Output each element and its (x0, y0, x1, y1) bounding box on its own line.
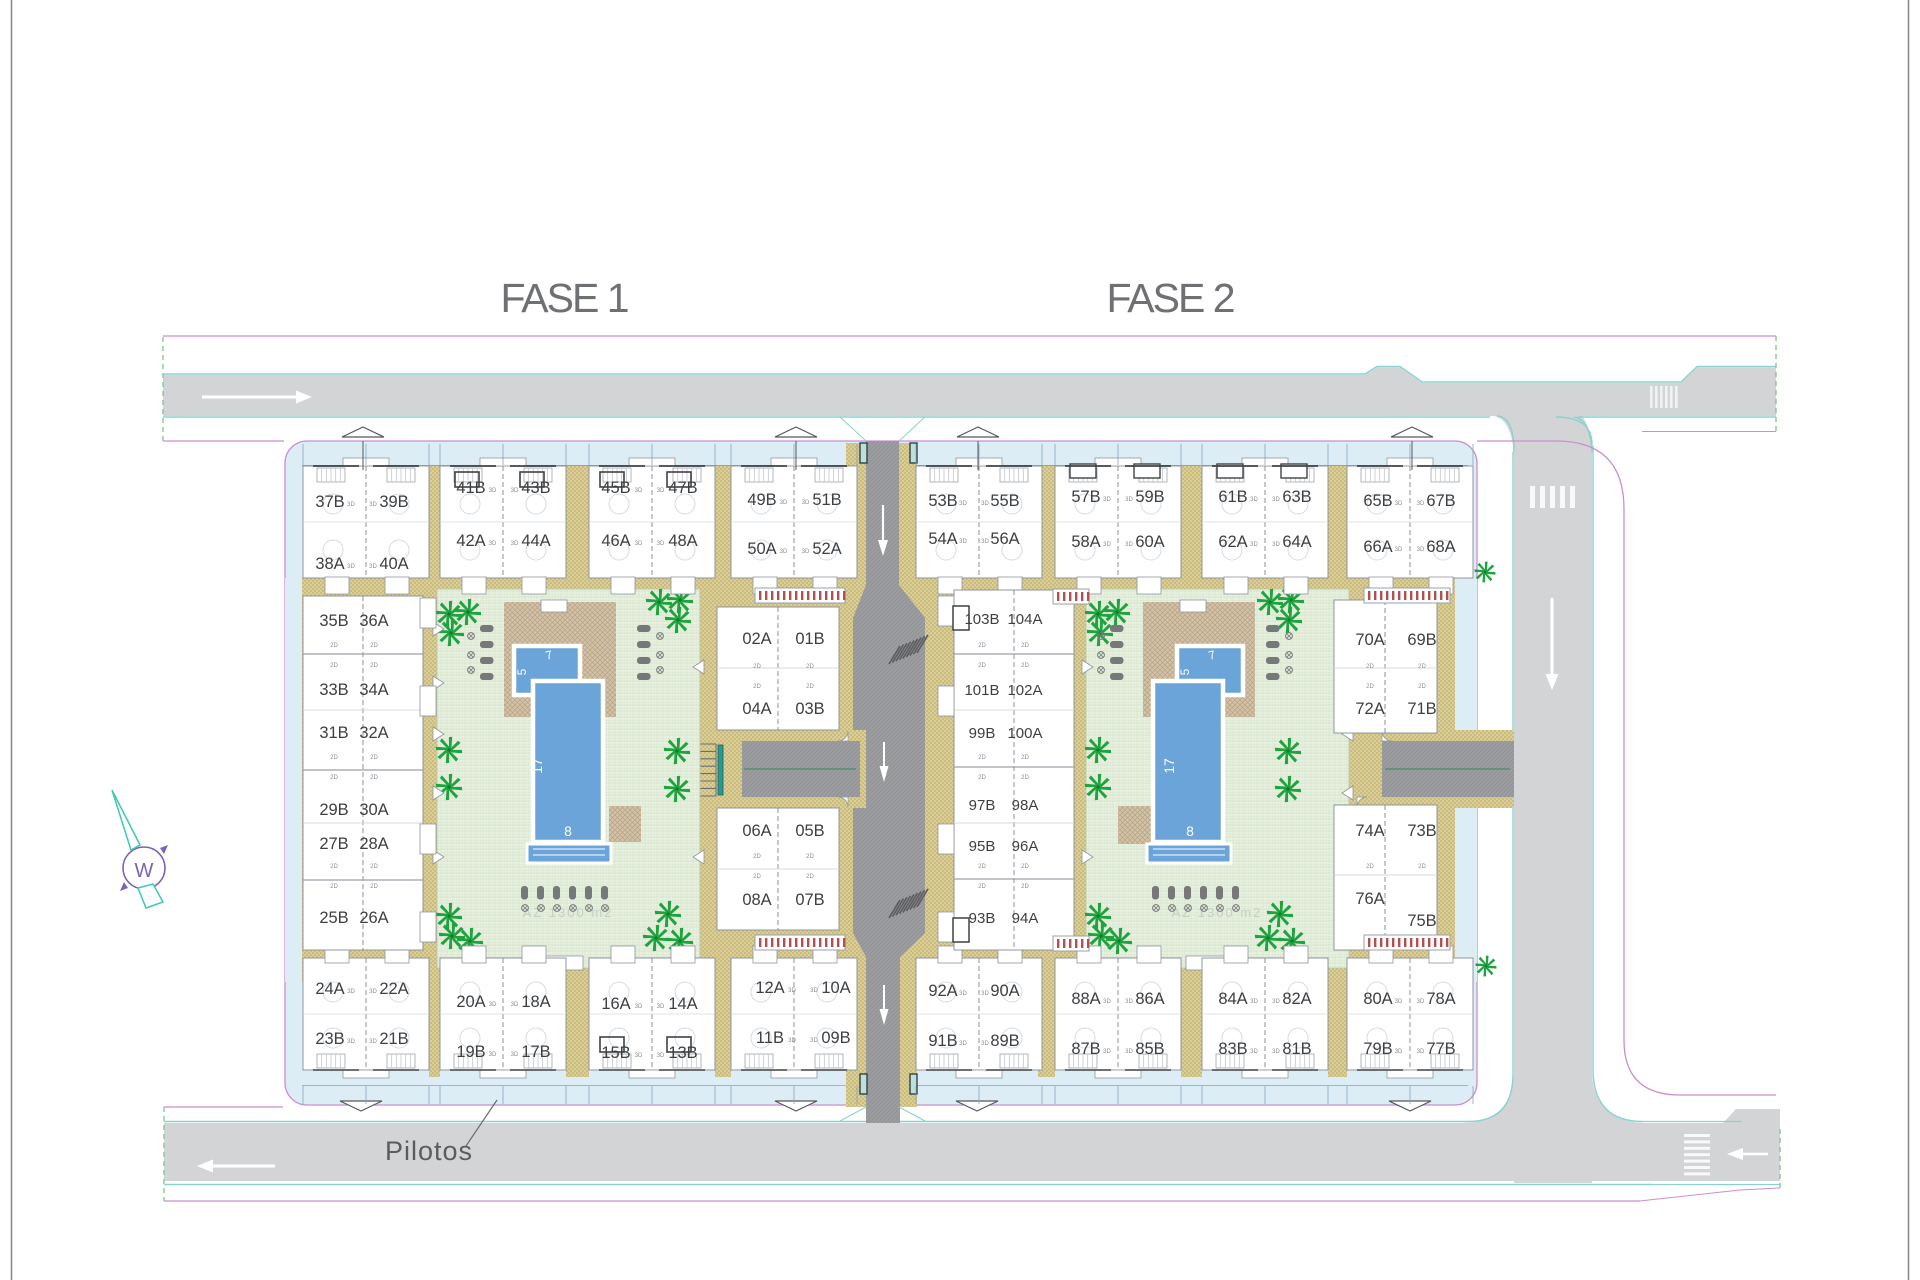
svg-text:3D: 3D (981, 991, 989, 997)
svg-text:2D: 2D (330, 643, 338, 649)
svg-text:10A: 10A (821, 979, 850, 997)
svg-text:14A: 14A (668, 995, 697, 1013)
svg-text:8: 8 (564, 823, 572, 839)
svg-text:3D: 3D (1272, 999, 1280, 1005)
svg-text:3D: 3D (1125, 1049, 1133, 1055)
svg-text:22A: 22A (379, 980, 408, 998)
svg-text:3D: 3D (489, 1002, 497, 1008)
svg-text:38A: 38A (315, 555, 344, 573)
svg-text:3D: 3D (1250, 542, 1258, 548)
svg-text:87B: 87B (1071, 1040, 1100, 1058)
svg-text:3D: 3D (1125, 497, 1133, 503)
svg-text:3D: 3D (1395, 999, 1403, 1005)
svg-text:3D: 3D (1395, 501, 1403, 507)
svg-text:35B: 35B (319, 612, 348, 630)
svg-text:56A: 56A (990, 530, 1019, 548)
svg-text:81B: 81B (1282, 1040, 1311, 1058)
svg-text:92A: 92A (928, 982, 957, 1000)
svg-text:54A: 54A (928, 530, 957, 548)
svg-text:2D: 2D (1418, 684, 1426, 690)
svg-text:23B: 23B (315, 1030, 344, 1048)
svg-text:3D: 3D (511, 1052, 519, 1058)
svg-text:07B: 07B (795, 891, 824, 909)
svg-text:3D: 3D (369, 502, 377, 508)
svg-text:3D: 3D (369, 989, 377, 995)
svg-text:41B: 41B (456, 479, 485, 497)
svg-text:29B: 29B (319, 801, 348, 819)
svg-text:3D: 3D (959, 501, 967, 507)
svg-text:40A: 40A (379, 555, 408, 573)
svg-text:W: W (135, 860, 154, 882)
svg-text:84A: 84A (1218, 990, 1247, 1008)
svg-text:03B: 03B (795, 700, 824, 718)
svg-text:2D: 2D (1021, 775, 1029, 781)
svg-text:49B: 49B (747, 491, 776, 509)
svg-text:2D: 2D (978, 643, 986, 649)
svg-text:3D: 3D (802, 500, 810, 506)
svg-text:3D: 3D (1250, 999, 1258, 1005)
svg-text:2D: 2D (1366, 684, 1374, 690)
svg-text:73B: 73B (1407, 822, 1436, 840)
svg-text:102A: 102A (1007, 682, 1042, 699)
svg-text:2D: 2D (370, 663, 378, 669)
svg-text:85B: 85B (1135, 1040, 1164, 1058)
svg-text:97B: 97B (969, 797, 996, 814)
svg-text:3D: 3D (959, 1041, 967, 1047)
svg-text:3D: 3D (959, 539, 967, 545)
svg-text:3D: 3D (1125, 542, 1133, 548)
svg-text:99B: 99B (969, 725, 996, 742)
svg-text:21B: 21B (379, 1030, 408, 1048)
svg-text:86A: 86A (1135, 990, 1164, 1008)
svg-text:09B: 09B (821, 1029, 850, 1047)
svg-text:13B: 13B (668, 1044, 697, 1062)
svg-text:3D: 3D (1395, 1049, 1403, 1055)
svg-text:37B: 37B (315, 493, 344, 511)
svg-text:24A: 24A (315, 980, 344, 998)
svg-text:27B: 27B (319, 835, 348, 853)
svg-text:2D: 2D (1021, 643, 1029, 649)
svg-text:2D: 2D (1021, 755, 1029, 761)
svg-text:2D: 2D (806, 854, 814, 860)
svg-text:2D: 2D (370, 884, 378, 890)
svg-text:3D: 3D (1103, 999, 1111, 1005)
svg-text:12A: 12A (755, 979, 784, 997)
svg-text:3D: 3D (347, 989, 355, 995)
svg-text:88A: 88A (1071, 990, 1100, 1008)
svg-text:2D: 2D (370, 643, 378, 649)
svg-text:3D: 3D (489, 488, 497, 494)
svg-text:25B: 25B (319, 909, 348, 927)
svg-text:3D: 3D (635, 1053, 643, 1059)
svg-text:80A: 80A (1363, 990, 1392, 1008)
svg-text:17B: 17B (521, 1043, 550, 1061)
svg-text:3D: 3D (1395, 547, 1403, 553)
svg-text:Pilotos: Pilotos (385, 1136, 473, 1166)
svg-text:01B: 01B (795, 630, 824, 648)
svg-text:46A: 46A (601, 532, 630, 550)
svg-text:71B: 71B (1407, 700, 1436, 718)
svg-text:63B: 63B (1282, 488, 1311, 506)
svg-text:45B: 45B (601, 479, 630, 497)
svg-text:2D: 2D (1418, 864, 1426, 870)
svg-text:20A: 20A (456, 993, 485, 1011)
svg-text:34A: 34A (359, 681, 388, 699)
svg-text:2D: 2D (330, 663, 338, 669)
svg-text:18A: 18A (521, 993, 550, 1011)
svg-text:52A: 52A (812, 540, 841, 558)
svg-text:58A: 58A (1071, 533, 1100, 551)
svg-text:08A: 08A (742, 891, 771, 909)
svg-text:15B: 15B (601, 1044, 630, 1062)
svg-text:2D: 2D (370, 755, 378, 761)
svg-text:3D: 3D (489, 1052, 497, 1058)
svg-text:05B: 05B (795, 822, 824, 840)
svg-text:3D: 3D (511, 1002, 519, 1008)
svg-text:43B: 43B (521, 479, 550, 497)
svg-text:82A: 82A (1282, 990, 1311, 1008)
svg-text:103B: 103B (964, 611, 999, 628)
svg-text:3D: 3D (788, 988, 796, 994)
svg-text:FASE 2: FASE 2 (1106, 275, 1233, 321)
svg-text:06A: 06A (742, 822, 771, 840)
svg-text:FASE 1: FASE 1 (500, 275, 627, 321)
svg-text:2D: 2D (330, 864, 338, 870)
svg-text:98A: 98A (1012, 797, 1039, 814)
svg-text:3D: 3D (1417, 501, 1425, 507)
svg-text:42A: 42A (456, 532, 485, 550)
svg-text:2D: 2D (978, 775, 986, 781)
svg-text:60A: 60A (1135, 533, 1164, 551)
svg-text:93B: 93B (969, 910, 996, 927)
svg-text:3D: 3D (802, 549, 810, 555)
svg-text:2D: 2D (978, 864, 986, 870)
svg-text:8: 8 (1186, 823, 1194, 839)
svg-text:91B: 91B (928, 1032, 957, 1050)
svg-text:3D: 3D (981, 1041, 989, 1047)
svg-text:3D: 3D (1103, 497, 1111, 503)
svg-text:3D: 3D (657, 488, 665, 494)
svg-text:2D: 2D (753, 874, 761, 880)
svg-text:3D: 3D (1103, 1049, 1111, 1055)
svg-text:2D: 2D (978, 884, 986, 890)
svg-text:3D: 3D (780, 500, 788, 506)
svg-text:2D: 2D (806, 874, 814, 880)
svg-text:2D: 2D (370, 775, 378, 781)
svg-text:79B: 79B (1363, 1040, 1392, 1058)
svg-text:36A: 36A (359, 612, 388, 630)
svg-text:31B: 31B (319, 724, 348, 742)
svg-text:19B: 19B (456, 1043, 485, 1061)
svg-text:65B: 65B (1363, 492, 1392, 510)
svg-text:2D: 2D (1021, 884, 1029, 890)
svg-text:04A: 04A (742, 700, 771, 718)
svg-text:50A: 50A (747, 540, 776, 558)
svg-text:39B: 39B (379, 493, 408, 511)
svg-text:3D: 3D (657, 541, 665, 547)
svg-text:3D: 3D (635, 1004, 643, 1010)
svg-text:67B: 67B (1426, 492, 1455, 510)
svg-text:2D: 2D (1021, 663, 1029, 669)
svg-text:3D: 3D (1272, 542, 1280, 548)
svg-text:2D: 2D (1021, 864, 1029, 870)
svg-text:89B: 89B (990, 1032, 1019, 1050)
svg-text:AZ 1300 m2: AZ 1300 m2 (523, 905, 614, 920)
svg-text:100A: 100A (1007, 725, 1042, 742)
svg-text:16A: 16A (601, 995, 630, 1013)
svg-text:104A: 104A (1007, 611, 1042, 628)
svg-text:83B: 83B (1218, 1040, 1247, 1058)
svg-text:5: 5 (515, 668, 529, 675)
svg-text:3D: 3D (369, 564, 377, 570)
svg-text:76A: 76A (1355, 890, 1384, 908)
svg-text:61B: 61B (1218, 488, 1247, 506)
svg-text:44A: 44A (521, 532, 550, 550)
svg-text:2D: 2D (806, 684, 814, 690)
svg-text:64A: 64A (1282, 533, 1311, 551)
svg-text:17: 17 (529, 758, 545, 774)
svg-text:94A: 94A (1012, 910, 1039, 927)
svg-text:3D: 3D (1250, 1049, 1258, 1055)
svg-text:3D: 3D (1417, 547, 1425, 553)
svg-text:2D: 2D (1366, 864, 1374, 870)
svg-text:74A: 74A (1355, 822, 1384, 840)
svg-text:02A: 02A (742, 630, 771, 648)
svg-text:68A: 68A (1426, 538, 1455, 556)
svg-text:78A: 78A (1426, 990, 1455, 1008)
svg-text:95B: 95B (969, 838, 996, 855)
svg-text:3D: 3D (511, 488, 519, 494)
svg-text:3D: 3D (810, 1038, 818, 1044)
svg-text:2D: 2D (330, 884, 338, 890)
svg-text:3D: 3D (810, 988, 818, 994)
svg-text:66A: 66A (1363, 538, 1392, 556)
svg-text:62A: 62A (1218, 533, 1247, 551)
svg-text:3D: 3D (347, 564, 355, 570)
svg-text:3D: 3D (1272, 497, 1280, 503)
svg-text:48A: 48A (668, 532, 697, 550)
svg-text:28A: 28A (359, 835, 388, 853)
svg-text:101B: 101B (964, 682, 999, 699)
svg-text:17: 17 (1161, 758, 1177, 774)
svg-text:77B: 77B (1426, 1040, 1455, 1058)
svg-text:3D: 3D (1103, 542, 1111, 548)
svg-text:3D: 3D (347, 1039, 355, 1045)
svg-text:3D: 3D (657, 1004, 665, 1010)
svg-text:3D: 3D (981, 501, 989, 507)
svg-text:3D: 3D (1250, 497, 1258, 503)
svg-text:51B: 51B (812, 491, 841, 509)
svg-text:3D: 3D (1272, 1049, 1280, 1055)
svg-text:75B: 75B (1407, 912, 1436, 930)
svg-text:3D: 3D (369, 1039, 377, 1045)
svg-text:33B: 33B (319, 681, 348, 699)
svg-text:3D: 3D (635, 541, 643, 547)
svg-text:3D: 3D (657, 1053, 665, 1059)
svg-text:11B: 11B (756, 1029, 784, 1047)
svg-text:2D: 2D (753, 684, 761, 690)
svg-text:5: 5 (1178, 668, 1192, 675)
svg-text:3D: 3D (489, 541, 497, 547)
svg-text:59B: 59B (1135, 488, 1164, 506)
svg-text:47B: 47B (668, 479, 697, 497)
svg-text:55B: 55B (990, 492, 1019, 510)
svg-text:3D: 3D (1125, 999, 1133, 1005)
svg-text:32A: 32A (359, 724, 388, 742)
svg-text:26A: 26A (359, 909, 388, 927)
svg-text:3D: 3D (1417, 1049, 1425, 1055)
svg-text:90A: 90A (990, 982, 1019, 1000)
svg-text:2D: 2D (1366, 664, 1374, 670)
svg-text:2D: 2D (806, 664, 814, 670)
svg-text:70A: 70A (1355, 631, 1384, 649)
svg-text:96A: 96A (1012, 838, 1039, 855)
svg-text:69B: 69B (1407, 631, 1436, 649)
svg-text:53B: 53B (928, 492, 957, 510)
svg-text:3D: 3D (981, 539, 989, 545)
svg-text:2D: 2D (978, 755, 986, 761)
svg-text:3D: 3D (635, 488, 643, 494)
svg-text:2D: 2D (370, 864, 378, 870)
svg-text:3D: 3D (788, 1038, 796, 1044)
svg-text:3D: 3D (780, 549, 788, 555)
svg-text:57B: 57B (1071, 488, 1100, 506)
svg-text:3D: 3D (347, 502, 355, 508)
svg-text:2D: 2D (330, 775, 338, 781)
svg-text:2D: 2D (753, 664, 761, 670)
svg-text:30A: 30A (359, 801, 388, 819)
svg-text:2D: 2D (978, 663, 986, 669)
svg-text:72A: 72A (1355, 700, 1384, 718)
svg-text:2D: 2D (330, 755, 338, 761)
svg-text:3D: 3D (959, 991, 967, 997)
svg-text:2D: 2D (753, 854, 761, 860)
svg-text:2D: 2D (1418, 664, 1426, 670)
svg-text:3D: 3D (511, 541, 519, 547)
svg-text:3D: 3D (1417, 999, 1425, 1005)
